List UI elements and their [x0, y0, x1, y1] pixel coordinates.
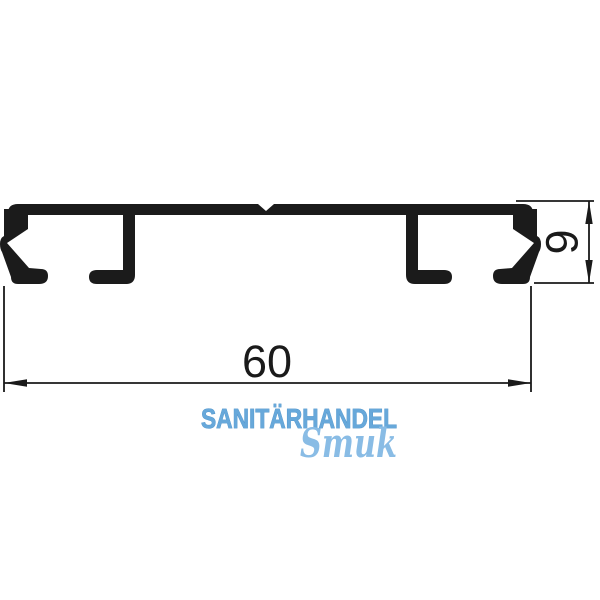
- product-drawing-canvas: 60 9 SANITÄRHANDEL Smuk: [0, 0, 600, 600]
- arrow-up-icon: [585, 201, 592, 224]
- arrow-right-icon: [508, 379, 531, 387]
- profile-cross-section: [0, 204, 541, 284]
- technical-drawing: 60 9 SANITÄRHANDEL Smuk: [0, 0, 600, 600]
- arrow-down-icon: [585, 260, 592, 283]
- arrow-left-icon: [4, 379, 27, 387]
- profile-right-wall: [493, 209, 541, 284]
- profile-left-wall: [0, 209, 48, 284]
- profile-top-plate: [8, 204, 533, 215]
- watermark-script-text: Smuk: [300, 420, 397, 467]
- profile-right-inner-leg: [406, 209, 452, 284]
- width-dimension-value: 60: [242, 336, 292, 387]
- profile-left-inner-leg: [89, 209, 135, 284]
- width-dimension: 60: [4, 286, 531, 392]
- height-dimension-value: 9: [537, 229, 588, 254]
- watermark: SANITÄRHANDEL Smuk: [201, 403, 397, 467]
